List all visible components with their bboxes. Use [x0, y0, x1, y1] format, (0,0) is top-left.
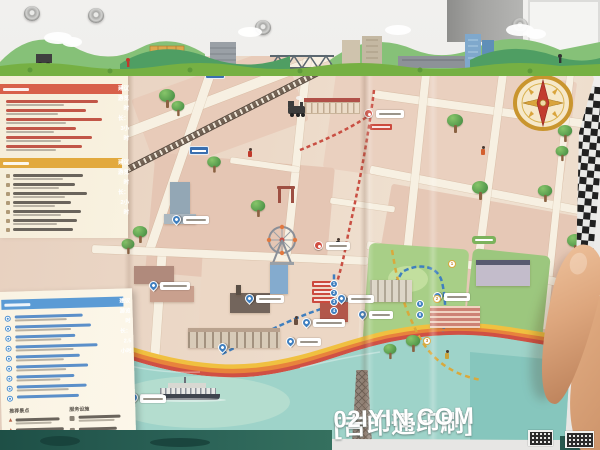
red-circle-icon: [364, 109, 373, 118]
route-stop: 6: [416, 311, 424, 319]
pedestrian-figure: [480, 146, 486, 156]
pedestrian-figure: [247, 148, 253, 158]
table-surface: [0, 430, 332, 450]
tree-icon: [556, 146, 569, 161]
map-top-hills-border: [0, 16, 600, 76]
legend-right-column-header: 服务设施: [69, 405, 89, 413]
illustrated-map: 1 2 3 4 5 6 1 2 3 建议游览时长：3小时: [0, 0, 600, 450]
tree-icon: [172, 101, 185, 116]
route-stop: 3: [423, 337, 431, 345]
chimney: [236, 285, 241, 295]
tree-icon: [406, 335, 420, 352]
pedestrian-figure: [444, 350, 450, 360]
compass-rose-icon: [512, 74, 574, 132]
tree-icon: [207, 156, 221, 172]
legend-yellow-banner: 建议游览时长：2小时: [0, 158, 122, 168]
legend-red-banner: 建议游览时长：3小时: [0, 84, 122, 94]
qr-code: [528, 430, 553, 446]
green-river-label: [472, 236, 496, 244]
qr-code: [565, 431, 594, 448]
ferris-wheel-icon: [264, 224, 300, 266]
legend-blue-banner: 建议游览时长：2.5小时: [1, 297, 123, 310]
red-circle-icon: [314, 241, 323, 250]
route-stop: 2: [433, 295, 441, 303]
tree-icon: [472, 181, 488, 200]
glass-tower: [270, 262, 288, 294]
photo-of-map: 1 2 3 4 5 6 1 2 3 建议游览时长：3小时: [0, 0, 600, 450]
gray-palace-building: [476, 260, 530, 286]
route-stop: 1: [330, 280, 338, 288]
steam-train-icon: [288, 96, 362, 122]
pedestrian-figure: [293, 316, 299, 326]
legend-panel-lower: 建议游览时长：2.5小时 推荐景点 服务设施 ▲ ▲ ▲ ▲ ▲ ▲ ▲: [0, 288, 137, 450]
route-stop: 4: [330, 307, 338, 315]
thumbnail: [567, 251, 589, 276]
arcade-building: [188, 328, 280, 348]
tree-icon: [384, 344, 397, 359]
legend-left-column-header: 推荐景点: [9, 407, 29, 415]
tree-icon: [447, 114, 463, 133]
tree-icon: [122, 239, 135, 254]
tree-icon: [251, 200, 265, 217]
map-sheet: 1 2 3 4 5 6 1 2 3 建议游览时长：3小时: [0, 56, 600, 440]
route-stop: 5: [416, 300, 424, 308]
blue-road-sign: [189, 146, 209, 155]
tree-icon: [133, 226, 147, 243]
watermark-domain: 02IYIN.COM: [333, 403, 475, 435]
route-stop: 2: [330, 289, 338, 297]
legend-panel-upper: 建议游览时长：3小时 建议游览时长：2小时: [0, 60, 128, 238]
route-stop: 1: [448, 260, 456, 268]
colonnade-building: [370, 280, 412, 302]
tree-icon: [538, 185, 552, 202]
striped-palace-building: [430, 306, 480, 328]
memorial-gate-icon: [276, 186, 296, 204]
red-route-label: [370, 124, 392, 130]
route-stop: 3: [330, 298, 338, 306]
tree-icon: [558, 125, 572, 142]
